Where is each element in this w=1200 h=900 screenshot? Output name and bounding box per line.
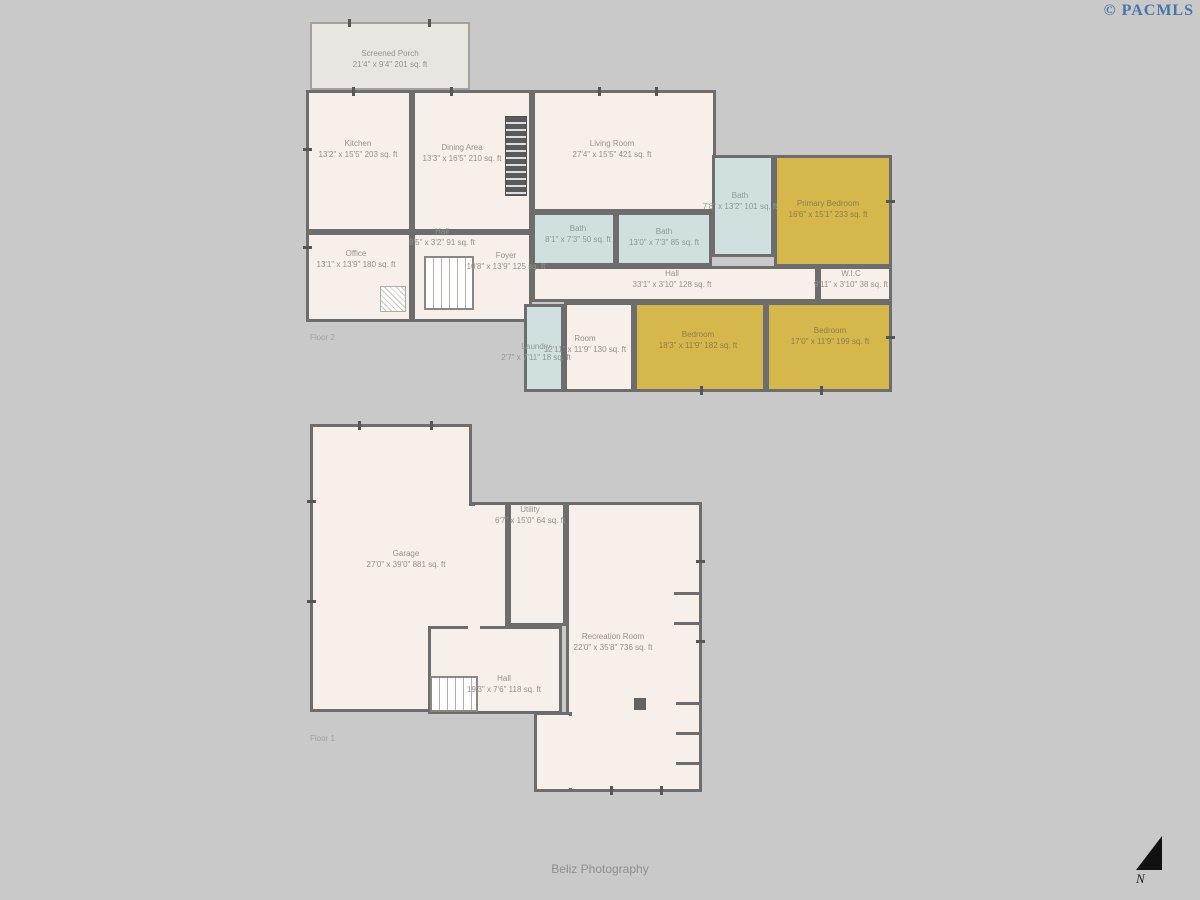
window-tick: [428, 19, 431, 27]
window-tick: [307, 500, 316, 503]
window-tick: [655, 87, 658, 96]
floor-plan-page: © PACMLS Beliz Photography N: [0, 0, 1200, 900]
label-hall-main: Hall33'1" x 3'10" 128 sq. ft: [632, 269, 711, 291]
wall-mask: [562, 716, 574, 788]
closet-wall: [674, 622, 700, 625]
window-tick: [430, 421, 433, 430]
label-hall-upper: Hall8'5" x 3'2" 91 sq. ft: [409, 227, 475, 249]
pacmls-watermark: © PACMLS: [1104, 2, 1194, 20]
label-recreation: Recreation Room22'0" x 35'8" 736 sq. ft: [573, 632, 652, 654]
window-tick: [450, 87, 453, 96]
window-tick: [352, 87, 355, 96]
closet-wall: [674, 592, 700, 595]
window-tick: [303, 246, 312, 249]
fireplace-icon: [505, 116, 527, 196]
label-garage: Garage27'0" x 39'0" 881 sq. ft: [366, 549, 445, 571]
window-tick: [886, 336, 895, 339]
label-foyer: Foyer10'8" x 13'9" 125 sq. ft: [466, 251, 545, 273]
label-living-room: Living Room27'4" x 15'5" 421 sq. ft: [572, 139, 651, 161]
north-arrow-triangle: [1136, 836, 1162, 870]
window-tick: [598, 87, 601, 96]
label-bath-primary: Bath7'8" x 13'2" 101 sq. ft: [703, 191, 778, 213]
post-marker: [634, 698, 646, 710]
label-utility: Utility6'7" x 15'0" 64 sq. ft: [495, 505, 565, 527]
window-tick: [696, 560, 705, 563]
window-tick: [303, 148, 312, 151]
label-room: Room12'11" x 11'9" 130 sq. ft: [544, 334, 626, 356]
window-tick: [358, 421, 361, 430]
window-tick: [700, 386, 703, 395]
closet-wall: [676, 702, 700, 705]
room-kitchen: [306, 90, 412, 232]
label-primary-bedroom: Primary Bedroom16'6" x 15'1" 233 sq. ft: [788, 199, 867, 221]
label-screened-porch: Screened Porch21'4" x 9'4" 201 sq. ft: [353, 49, 428, 71]
label-office: Office13'1" x 13'9" 180 sq. ft: [316, 249, 395, 271]
label-hall-floor1: Hall19'3" x 7'6" 118 sq. ft: [467, 674, 541, 696]
label-bath-a: Bath8'1" x 7'3" 50 sq. ft: [545, 224, 611, 246]
window-tick: [610, 786, 613, 795]
label-dining-area: Dining Area13'3" x 16'5" 210 sq. ft: [422, 143, 501, 165]
closet-wall: [676, 762, 700, 765]
photography-credit: Beliz Photography: [0, 862, 1200, 876]
label-bath-b: Bath13'0" x 7'3" 85 sq. ft: [629, 227, 699, 249]
label-wic: W.I.C9'11" x 3'10" 38 sq. ft: [814, 269, 888, 291]
north-label: N: [1136, 871, 1162, 887]
window-tick: [307, 600, 316, 603]
window-tick: [696, 640, 705, 643]
closet-wall: [676, 732, 700, 735]
window-tick: [820, 386, 823, 395]
label-bedroom-a: Bedroom18'3" x 11'9" 182 sq. ft: [659, 330, 737, 352]
window-tick: [660, 786, 663, 795]
label-kitchen: Kitchen13'2" x 15'5" 203 sq. ft: [318, 139, 397, 161]
floor1-tag: Floor 1: [310, 734, 335, 743]
north-arrow-icon: N: [1136, 836, 1162, 886]
window-tick: [348, 19, 351, 27]
window-tick: [886, 200, 895, 203]
floor2-tag: Floor 2: [310, 333, 335, 342]
hatched-area: [380, 286, 406, 312]
label-bedroom-b: Bedroom17'0" x 11'9" 199 sq. ft: [791, 326, 869, 348]
